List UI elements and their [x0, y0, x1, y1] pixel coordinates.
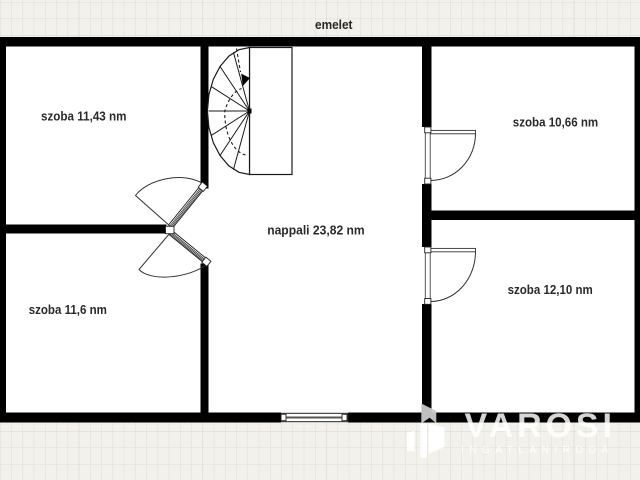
svg-text:emelet: emelet — [315, 17, 353, 32]
svg-text:szoba 11,6 nm: szoba 11,6 nm — [29, 302, 107, 317]
svg-text:szoba 11,43 nm: szoba 11,43 nm — [41, 109, 127, 124]
svg-text:szoba 10,66 nm: szoba 10,66 nm — [513, 115, 598, 130]
svg-text:szoba 12,10 nm: szoba 12,10 nm — [508, 282, 593, 297]
svg-text:nappali 23,82 nm: nappali 23,82 nm — [267, 222, 365, 237]
